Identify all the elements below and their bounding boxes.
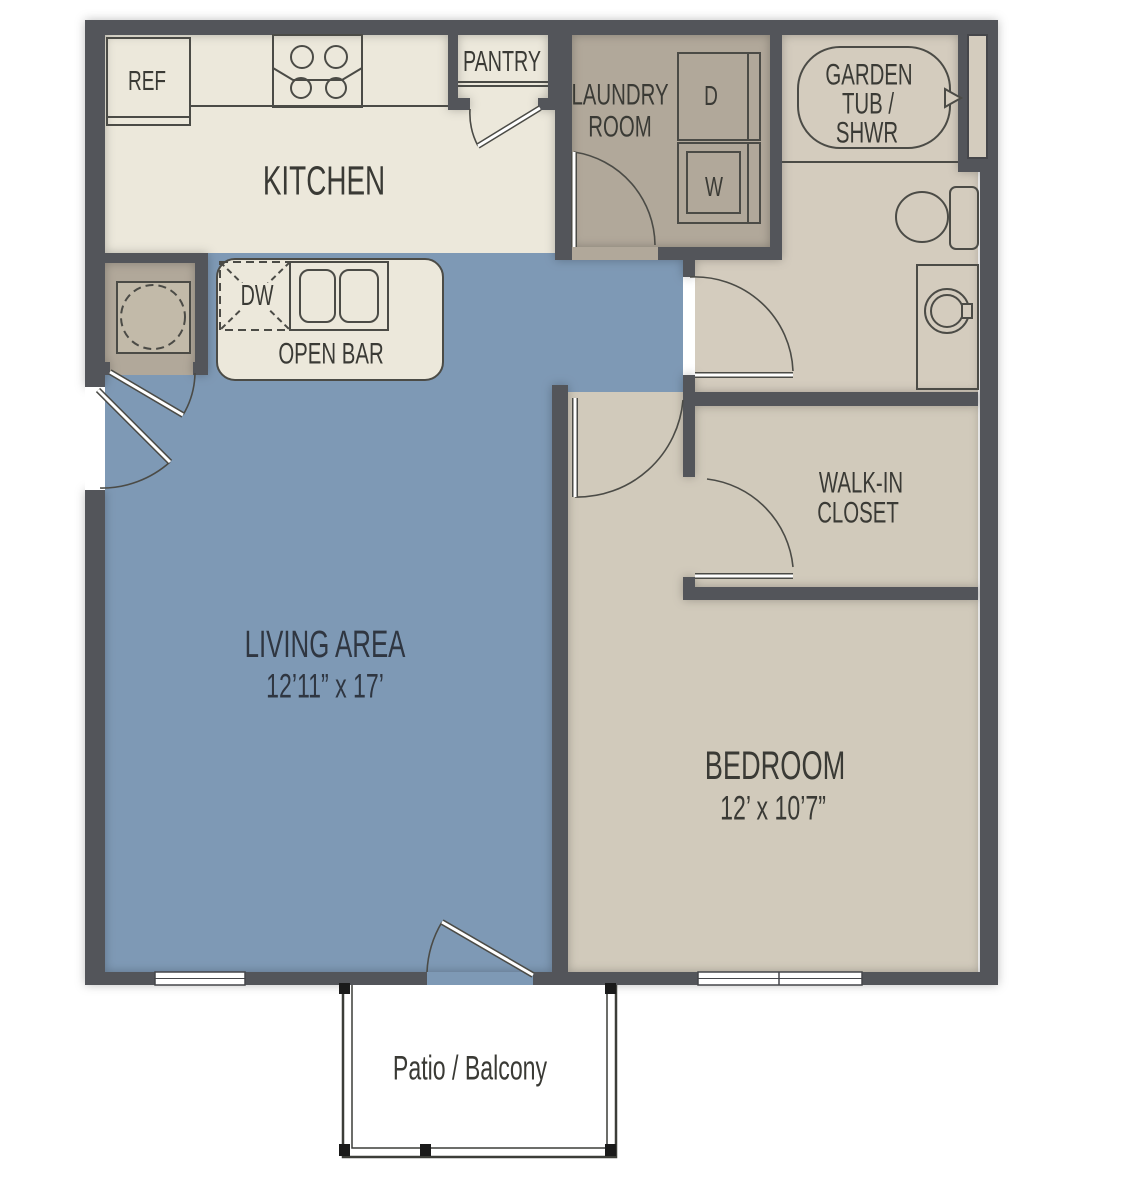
railing-post bbox=[605, 1144, 616, 1156]
front-door-opening bbox=[85, 387, 105, 490]
open-bar-label: OPEN BAR bbox=[278, 338, 383, 371]
garden-tub-label-line2: TUB / bbox=[842, 88, 895, 121]
floor-plan: KITCHEN PANTRY LAUNDRY ROOM GARDEN TUB /… bbox=[0, 0, 1145, 1200]
wall-closet-left bbox=[683, 406, 695, 477]
bedroom-dimensions: 12’ x 10’7” bbox=[720, 790, 826, 827]
laundry-label-line1: LAUNDRY bbox=[571, 79, 668, 112]
laundry-floor bbox=[572, 35, 770, 260]
wall-left-upper bbox=[85, 20, 105, 387]
laundry-door-opening bbox=[572, 247, 658, 260]
wall-left-lower bbox=[85, 490, 105, 985]
bedroom-label: BEDROOM bbox=[705, 744, 845, 788]
wall-right-upper-outer bbox=[987, 35, 998, 165]
walk-in-closet-label-line1: WALK-IN bbox=[819, 467, 903, 500]
wall-utility-stub-left bbox=[85, 362, 110, 375]
patio-label: Patio / Balcony bbox=[393, 1050, 548, 1087]
wall-closet-bottom bbox=[683, 587, 978, 600]
wall-bathroom-bottom bbox=[683, 392, 978, 406]
wall-right-connector bbox=[958, 158, 998, 172]
wall-laundry-left bbox=[555, 35, 572, 247]
wall-laundry-right bbox=[770, 35, 782, 260]
wall-utility-right bbox=[195, 253, 208, 375]
railing-post bbox=[420, 1144, 431, 1156]
railing-post bbox=[605, 983, 616, 994]
dishwasher-label: DW bbox=[241, 280, 274, 312]
railing-post bbox=[339, 1144, 350, 1156]
kitchen-label: KITCHEN bbox=[263, 158, 385, 204]
floor-plan-page: KITCHEN PANTRY LAUNDRY ROOM GARDEN TUB /… bbox=[0, 0, 1145, 1200]
bedroom-floor bbox=[568, 392, 978, 972]
laundry-label-line2: ROOM bbox=[588, 111, 651, 144]
walk-in-closet-label-line2: CLOSET bbox=[817, 497, 899, 530]
pantry-label: PANTRY bbox=[463, 46, 541, 78]
linen-chase bbox=[968, 35, 987, 158]
living-room-window bbox=[155, 972, 245, 985]
wall-top bbox=[85, 20, 998, 35]
wall-pantry-left bbox=[448, 35, 458, 110]
wall-right-upper-inner bbox=[958, 35, 968, 165]
railing-post bbox=[339, 983, 350, 994]
garden-tub-label-line3: SHWR bbox=[836, 117, 898, 150]
bedroom-window bbox=[698, 972, 862, 985]
wall-hall-stub-top bbox=[683, 260, 695, 277]
wall-right-lower bbox=[980, 158, 998, 985]
garden-tub-label-line1: GARDEN bbox=[825, 59, 912, 92]
living-area-label: LIVING AREA bbox=[245, 623, 406, 665]
wall-utility-top bbox=[97, 253, 208, 263]
water-heater-pan bbox=[117, 282, 190, 353]
wall-living-bedroom bbox=[552, 385, 568, 972]
hallway-floor bbox=[555, 253, 683, 398]
wall-pantry-stub-left bbox=[458, 98, 470, 110]
refrigerator-label: REF bbox=[128, 65, 166, 97]
bathroom-faucet-icon bbox=[962, 304, 972, 318]
dryer-label: D bbox=[704, 80, 718, 112]
bathroom-floor-lower bbox=[695, 260, 978, 406]
washer-label: W bbox=[705, 171, 723, 203]
living-area-dimensions: 12’11” x 17’ bbox=[266, 668, 384, 705]
patio-door-opening bbox=[427, 972, 533, 985]
